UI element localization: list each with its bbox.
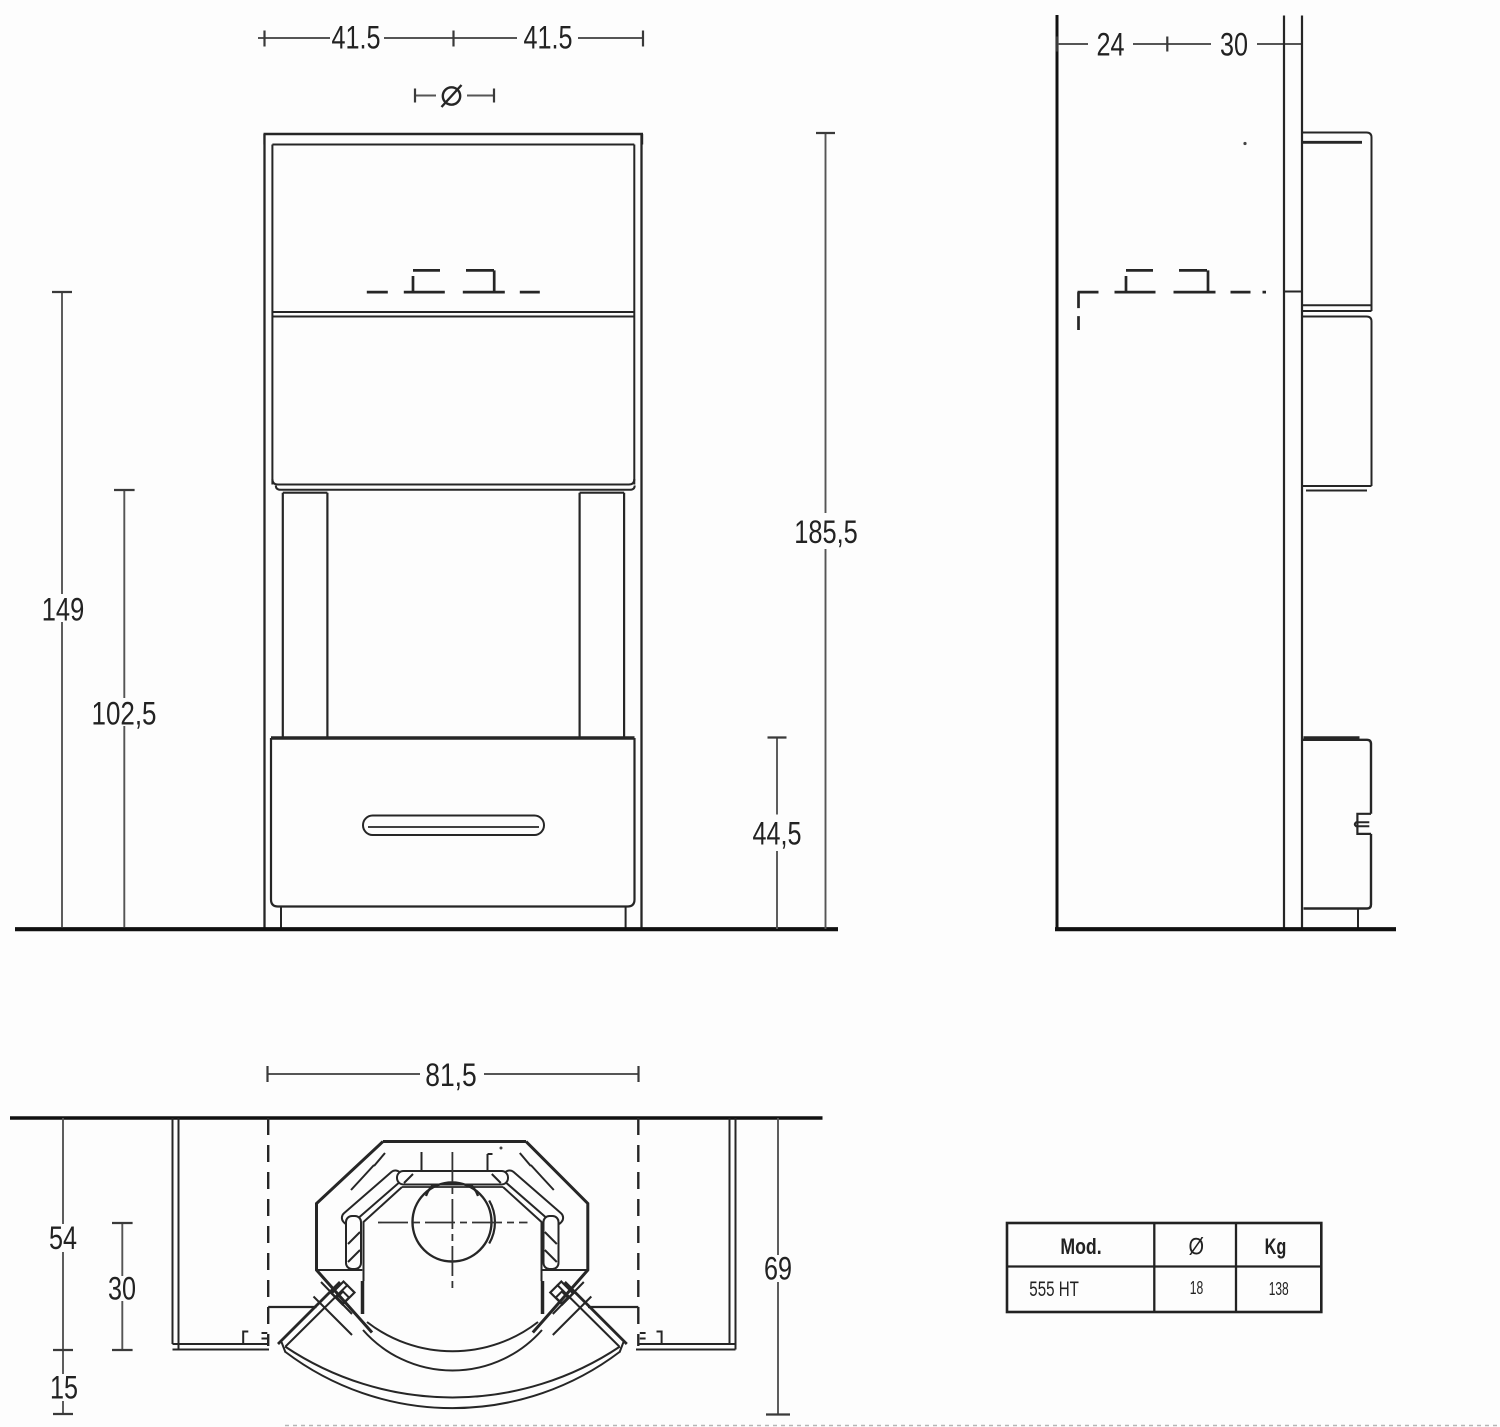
svg-text:30: 30 — [1220, 27, 1248, 63]
svg-text:44,5: 44,5 — [753, 816, 802, 852]
svg-text:138: 138 — [1269, 1279, 1289, 1299]
svg-text:Mod.: Mod. — [1060, 1234, 1101, 1259]
svg-text:185,5: 185,5 — [794, 514, 858, 550]
svg-text:30: 30 — [108, 1271, 136, 1307]
svg-text:41.5: 41.5 — [524, 20, 573, 56]
svg-text:Kg: Kg — [1265, 1234, 1287, 1259]
svg-text:69: 69 — [764, 1251, 792, 1287]
svg-text:102,5: 102,5 — [92, 696, 157, 732]
svg-text:Ø: Ø — [1188, 1234, 1204, 1261]
svg-text:18: 18 — [1190, 1278, 1204, 1298]
svg-text:41.5: 41.5 — [332, 20, 381, 56]
svg-text:15: 15 — [50, 1370, 78, 1406]
svg-text:54: 54 — [49, 1220, 77, 1256]
svg-text:555 HT: 555 HT — [1029, 1277, 1079, 1301]
svg-text:81,5: 81,5 — [425, 1057, 477, 1093]
svg-text:24: 24 — [1097, 27, 1125, 63]
svg-text:149: 149 — [42, 592, 85, 628]
